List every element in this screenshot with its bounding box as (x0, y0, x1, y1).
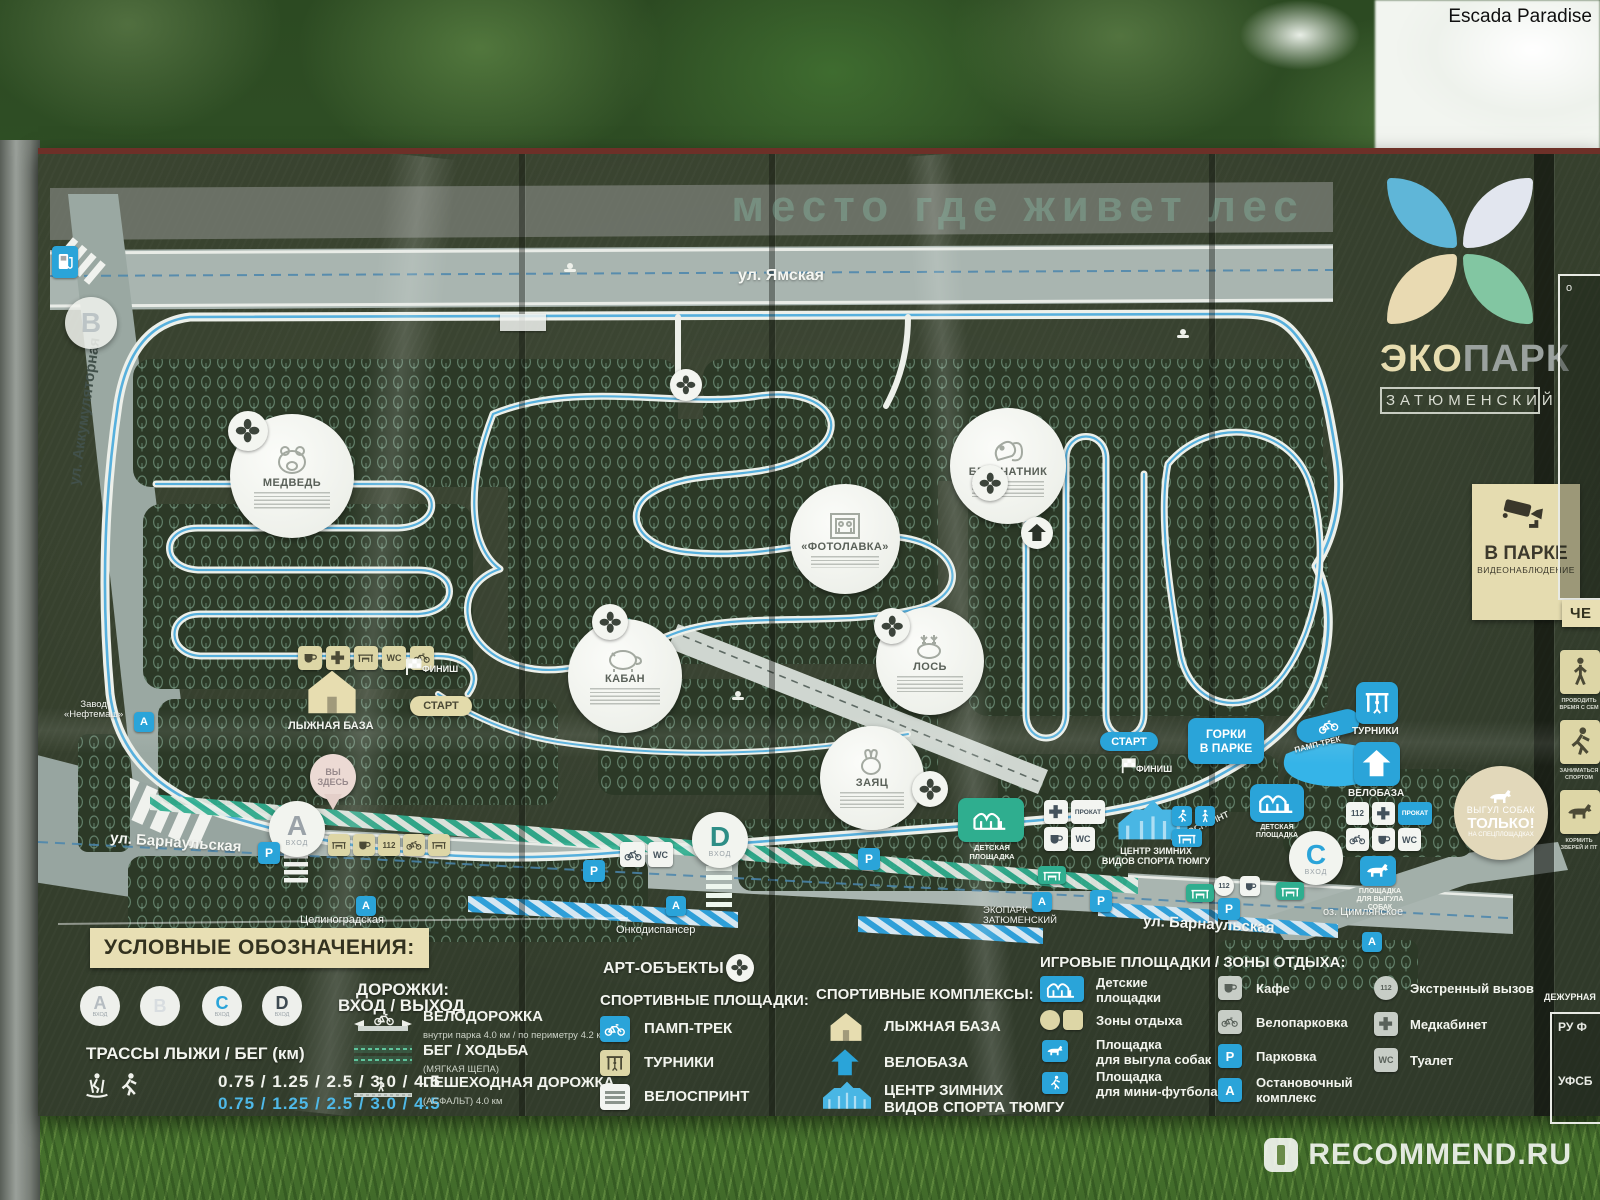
gate-a-sub: ВХОД (286, 840, 309, 847)
legend-gate-a-sub: ВХОД (93, 1012, 108, 1018)
legend-sc3-line1: ЦЕНТР ЗИМНИХ (884, 1082, 1003, 1099)
dog-area-label: ПЛОЩАДКА ДЛЯ ВЫГУЛА СОБАК (1354, 888, 1406, 912)
photo-scene: Escada Paradise (0, 0, 1600, 1200)
legend-bus-stop-icon: A (1218, 1078, 1242, 1102)
legend-wc-text: WC (1379, 1055, 1394, 1065)
pl1-line2: площадки (1096, 990, 1161, 1005)
bike-parking-icon (403, 834, 425, 856)
parking-icon: P (858, 848, 880, 870)
parking-text: P (265, 846, 273, 860)
family-time-caption: ПРОВОДИТЬ ВРЕМЯ С СЕМ (1556, 698, 1600, 711)
bus-shelter-icon (1276, 882, 1304, 900)
legend-ski-base-icon (820, 1010, 872, 1044)
cafe-icon (1044, 827, 1068, 851)
bench-icon (428, 834, 450, 856)
zavod-line2: «Нефтемаш» (64, 709, 123, 720)
bike-parking-icon (1346, 828, 1369, 851)
medical-icon (1044, 800, 1068, 824)
runner-icon (118, 1072, 140, 1098)
legend-pl5: Кафе (1256, 982, 1290, 997)
cafe-icon (353, 834, 375, 856)
poi-moose-caption (897, 676, 964, 692)
velobaza-icon (1354, 742, 1400, 786)
boar-icon (606, 647, 644, 673)
bus-shelter-icon (1172, 829, 1202, 847)
wc-icon: WC (382, 646, 406, 670)
gorki-line1: ГОРКИ (1206, 727, 1246, 741)
parking-icon: P (583, 860, 605, 882)
bus-stop-a-icon: A (134, 712, 154, 732)
legend-dog-icon (1042, 1040, 1068, 1062)
watermark-bottom: RECOMMEND.RU (1264, 1138, 1572, 1172)
sign-post (0, 140, 40, 1200)
side-phone2: УФСБ (1558, 1074, 1600, 1088)
art-object-icon (592, 604, 628, 640)
sky-patch-small (1240, 0, 1360, 70)
legend-sg2: ТУРНИКИ (644, 1054, 714, 1071)
kids-playground2-label: ДЕТСКАЯ ПЛОЩАДКА (1246, 824, 1308, 840)
sos-112-icon: 112 (1214, 876, 1234, 896)
prokat-text: ПРОКАТ (1075, 809, 1101, 816)
bus-stop-a-text: A (1368, 936, 1376, 948)
legend-kids-icon (1040, 976, 1084, 1002)
parking-icon: P (258, 842, 280, 864)
legend-pl8: Остановочныйкомплекс (1256, 1076, 1353, 1106)
bus-stop-a-text: A (1038, 896, 1046, 908)
legend-gate-b: B (140, 986, 180, 1026)
gas-station-icon (52, 246, 78, 278)
panel-seam (519, 154, 525, 1116)
prokat-icon: ПРОКАТ (1071, 800, 1105, 824)
bus-stop-a-text: A (672, 900, 680, 912)
bike-path-name: ВЕЛОДОРОЖКА (423, 1008, 543, 1025)
poi-bear-caption (254, 492, 331, 510)
squirrel-icon (990, 436, 1026, 466)
poi-boar: КАБАН (568, 619, 682, 733)
ski-icon (84, 1072, 110, 1098)
you-are-here-line2: ЗДЕСЬ (317, 777, 348, 787)
bus-stop-a-icon: A (1032, 892, 1052, 912)
finish-label: ФИНИШ (422, 664, 458, 674)
art-object-icon (874, 608, 910, 644)
legend-gate-a: AВХОД (80, 986, 120, 1026)
legend-sc3-line2: ВИДОВ СПОРТА ТЮМГУ (884, 1099, 1064, 1116)
cafe-icon (1372, 828, 1395, 851)
kids2-line1: ДЕТСКАЯ (1260, 824, 1293, 831)
art-object-icon (972, 465, 1008, 501)
art-object-icon (228, 411, 268, 451)
kids-playground2-icon (1250, 784, 1304, 822)
label-onkodispanser: Онкодиспансер (616, 924, 695, 936)
dog-icon (1486, 789, 1516, 805)
legend-gate-c-letter: C (216, 994, 229, 1012)
dog-walking-notice: ВЫГУЛ СОБАК ТОЛЬКО! НА СПЕЦПЛОЩАДКАХ (1454, 766, 1548, 860)
art-object-icon (670, 369, 702, 401)
run-path-icon (354, 1044, 412, 1066)
wc-text: WC (653, 850, 668, 860)
prokat-text: ПРОКАТ (1402, 810, 1428, 817)
do-sport-icon (1560, 720, 1600, 764)
poi-squirrel: БЕЛЬЧАТНИК (950, 408, 1066, 524)
feed-animals-icon (1560, 790, 1600, 834)
ecopark-logo: ЭКОПАРК ЗАТЮМЕНСКИЙ (1380, 178, 1540, 414)
squirrel-house-icon (1021, 517, 1053, 549)
legend-cafe-icon (1218, 976, 1242, 1000)
pl8-line1: Остановочный (1256, 1075, 1353, 1090)
street-yamskaya: ул. Ямская (738, 267, 824, 285)
side-box-text: о (1566, 282, 1572, 294)
mini-football-icon (1172, 806, 1192, 826)
legend-sc2: ВЕЛОБАЗА (884, 1054, 968, 1071)
pl3-line1: Площадка (1096, 1037, 1162, 1052)
bus-shelter-icon (1038, 866, 1066, 884)
legend-pl7: Парковка (1256, 1050, 1317, 1065)
ski-base-label: ЛЫЖНАЯ БАЗА (288, 720, 374, 732)
poi-hare: ЗАЯЦ (820, 726, 924, 830)
poi-fotolavka-label: «ФОТОЛАВКА» (801, 541, 889, 553)
winter-sport-center-label: ЦЕНТР ЗИМНИХ ВИДОВ СПОРТА ТЮМГУ (1086, 846, 1226, 867)
family-time-icon (1560, 650, 1600, 694)
turniki-label: ТУРНИКИ (1352, 726, 1399, 737)
stop-line2: ЗАТЮМЕНСКИЙ (983, 915, 1057, 926)
bus-shelter-icon (1186, 884, 1214, 902)
bike-path-icon (354, 1010, 412, 1032)
poi-moose-label: ЛОСЬ (913, 661, 947, 673)
legend-sg1: ПАМП-ТРЕК (644, 1020, 732, 1037)
poi-bear-label: МЕДВЕДЬ (263, 477, 321, 489)
do-sport-caption: ЗАНИМАТЬСЯ СПОРТОМ (1556, 768, 1600, 781)
legend-sg3: ВЕЛОСПРИНТ (644, 1088, 749, 1105)
parking-text: P (865, 852, 873, 866)
finish-flag-icon (404, 656, 424, 678)
legend-art-icon (726, 954, 754, 982)
start2-label: СТАРТ (1100, 732, 1158, 751)
dog-area-icon (1360, 856, 1396, 886)
bike-parking-icon (620, 842, 645, 867)
kids2-line2: ПЛОЩАДКА (1256, 832, 1298, 839)
legend-pl11: Туалет (1410, 1054, 1453, 1069)
side-phone1: РУ Ф (1558, 1020, 1600, 1034)
parking-icon: P (1090, 890, 1112, 912)
start-text: СТАРТ (423, 700, 459, 712)
park-map-graphic (38, 154, 1600, 1116)
kids-playground-icon (958, 798, 1024, 842)
photo-frame-icon (828, 511, 862, 541)
legend-pump-icon (600, 1016, 630, 1042)
legend-parking-text: P (1226, 1049, 1235, 1064)
gate-d: DВХОД (692, 812, 748, 868)
sticker (500, 314, 546, 331)
legend-walk-path: ПЕШЕХОДНАЯ ДОРОЖКА (АСФАЛЬТ) 4.0 км (423, 1074, 614, 1108)
legend-run-path: БЕГ / ХОДЬБА (МЯГКАЯ ЩЕПА) (423, 1042, 528, 1076)
wc-text: WC (387, 653, 402, 663)
moose-icon (912, 631, 948, 661)
legend-sos-icon: 112 (1374, 976, 1398, 1000)
medical-icon (1372, 802, 1395, 825)
poi-fotolavka: «ФОТОЛАВКА» (790, 484, 900, 594)
bench-icon (328, 834, 350, 856)
legend-bike-path: ВЕЛОДОРОЖКА внутри парка 4.0 км / по пер… (423, 1008, 607, 1042)
start-label: СТАРТ (410, 696, 472, 716)
logo-park: ПАРК (1463, 338, 1570, 380)
bus-stop-a-icon: A (666, 896, 686, 916)
legend-sc3: ЦЕНТР ЗИМНИХ ВИДОВ СПОРТА ТЮМГУ (884, 1082, 1064, 1116)
cafe-icon (1240, 876, 1260, 896)
logo-subtitle: ЗАТЮМЕНСКИЙ (1380, 387, 1540, 414)
legend-play-title: ИГРОВЫЕ ПЛОЩАДКИ / ЗОНЫ ОТДЫХА: (1040, 954, 1345, 971)
panel-seam (1209, 154, 1215, 1116)
legend-gate-c-sub: ВХОД (215, 1012, 230, 1018)
legend-sos-text: 112 (1380, 985, 1391, 992)
gate-d-letter: D (710, 823, 730, 851)
legend-pl10: Медкабинет (1410, 1018, 1487, 1033)
legend-gate-a-letter: A (94, 994, 107, 1012)
sos-112-icon: 112 (378, 834, 400, 856)
walk-path-icon (354, 1076, 412, 1100)
watermark-top: Escada Paradise (1448, 6, 1592, 28)
side-info-box: о (1558, 274, 1600, 600)
legend-sport-complex-title: СПОРТИВНЫЕ КОМПЛЕКСЫ: (816, 986, 1034, 1003)
gate-c-letter: C (1306, 841, 1326, 869)
legend-gate-d: DВХОД (262, 986, 302, 1026)
bus-stop-a-text: A (140, 716, 148, 728)
gate-b-letter: B (81, 309, 101, 337)
legend-pl2: Зоны отдыха (1096, 1014, 1182, 1029)
hare-icon (857, 749, 887, 777)
wc-icon: WC (648, 842, 673, 867)
logo-leaves-icon (1380, 178, 1540, 324)
runner-icon (1195, 806, 1215, 826)
legend-gate-b-letter: B (154, 997, 167, 1015)
sos-112-text: 112 (1218, 883, 1229, 890)
legend-football-icon (1042, 1072, 1068, 1094)
kids-playground-label: ДЕТСКАЯ ПЛОЩАДКА (952, 844, 1032, 861)
parking-text: P (1225, 902, 1233, 916)
bus-stop-a-icon: A (1362, 932, 1382, 952)
pl1-line1: Детские (1096, 975, 1148, 990)
poi-boar-caption (590, 688, 661, 706)
side-duty-label: ДЕЖУРНАЯ (1544, 992, 1596, 1002)
pl4-line2: для мини-футбола (1096, 1084, 1218, 1099)
notice-line3: НА СПЕЦПЛОЩАДКАХ (1468, 832, 1533, 838)
gate-b: B (65, 297, 117, 349)
prokat-icon: ПРОКАТ (1398, 802, 1432, 825)
legend-pl6: Велопарковка (1256, 1016, 1348, 1031)
logo-eco: ЭКО (1380, 338, 1463, 380)
art-object-icon (912, 771, 948, 807)
legend-wc-icon: WC (1374, 1048, 1398, 1072)
gate-c-sub: ВХОД (1305, 869, 1328, 876)
panel-seam (769, 154, 775, 1116)
gate-d-sub: ВХОД (709, 851, 732, 858)
bike-path-sub: внутри парка 4.0 км / по периметру 4.2 к… (423, 1030, 607, 1041)
legend-tracks-title: ТРАССЫ ЛЫЖИ / БЕГ (км) (86, 1044, 305, 1064)
gate-a-letter: A (287, 812, 307, 840)
label-zavod-neftemash: Завод «Нефтемаш» (64, 700, 123, 721)
legend-pl4: Площадкадля мини-футбола (1096, 1070, 1218, 1100)
legend-velobaza-icon (828, 1048, 862, 1078)
pl8-line2: комплекс (1256, 1090, 1316, 1105)
parking-icon: P (1218, 898, 1240, 920)
finish2-label: ФИНИШ (1136, 764, 1172, 774)
recommend-icon (1264, 1138, 1298, 1172)
logo-title: ЭКОПАРК (1380, 338, 1540, 381)
legend-bus-stop-text: A (1225, 1083, 1234, 1098)
legend-gate-d-letter: D (276, 994, 289, 1012)
legend-rest-zone-icon (1040, 1010, 1060, 1030)
parking-text: P (590, 864, 598, 878)
legend-rest-zone-icon2 (1063, 1010, 1083, 1030)
sos-112-text: 112 (383, 841, 396, 850)
pl4-line1: Площадка (1096, 1069, 1162, 1084)
gorki-v-parke-label: ГОРКИ В ПАРКЕ (1188, 718, 1264, 764)
legend-art-title: АРТ-ОБЪЕКТЫ (603, 960, 724, 978)
bear-icon (272, 443, 312, 477)
poi-hare-caption (840, 792, 904, 808)
run-path-name: БЕГ / ХОДЬБА (423, 1042, 528, 1059)
park-map-board: место где живет лес ЭКОПАРК ЗАТЮМЕНСКИЙ … (38, 148, 1600, 1116)
you-are-here-line1: ВЫ (325, 767, 340, 777)
side-phones-box: РУ Ф УФСБ (1550, 1012, 1600, 1124)
legend-winter-center-icon (816, 1080, 878, 1112)
legend-bike-parking-icon (1218, 1010, 1242, 1034)
legend-velosprint-icon (600, 1084, 630, 1110)
wc-icon: WC (1398, 828, 1421, 851)
walk-path-sub: (АСФАЛЬТ) 4.0 км (423, 1096, 502, 1107)
watermark-bottom-text: RECOMMEND.RU (1308, 1138, 1572, 1172)
dog-area-line3: СОБАК (1368, 904, 1392, 911)
you-are-here-marker: ВЫ ЗДЕСЬ (310, 754, 356, 800)
feed-animals-caption: КОРМИТЬ ЗВЕРЕЙ И ПТ (1556, 838, 1600, 851)
legend-pl3: Площадкадля выгула собак (1096, 1038, 1211, 1068)
ski-base-house-icon (292, 666, 372, 718)
legend-title: УСЛОВНЫЕ ОБОЗНАЧЕНИЯ: (90, 928, 429, 968)
velobaza-label: ВЕЛОБАЗА (1348, 788, 1404, 799)
wc-text: WC (1076, 834, 1091, 844)
wc-text: WC (1402, 835, 1417, 845)
kids-line2: ПЛОЩАДКА (969, 852, 1014, 861)
board-title: место где живет лес (658, 182, 1378, 232)
sos-112-text: 112 (1351, 809, 1364, 818)
bus-stop-a-icon: A (356, 896, 376, 916)
parking-text: P (1097, 894, 1105, 908)
legend-turniki-icon (600, 1050, 630, 1076)
notice-line1: ВЫГУЛ СОБАК (1467, 805, 1535, 815)
poi-hare-label: ЗАЯЦ (856, 777, 888, 789)
legend-parking-icon: P (1218, 1044, 1242, 1068)
legend-gate-c: CВХОД (202, 986, 242, 1026)
walk-path-name: ПЕШЕХОДНАЯ ДОРОЖКА (423, 1074, 614, 1091)
legend-pl1: Детскиеплощадки (1096, 976, 1161, 1006)
cctv-camera-icon (1499, 494, 1553, 534)
sos-112-icon: 112 (1346, 802, 1369, 825)
poi-boar-label: КАБАН (605, 673, 645, 685)
legend-gate-d-sub: ВХОД (275, 1012, 290, 1018)
poi-fotolavka-caption (811, 556, 879, 568)
legend-pl9: Экстренный вызов (1410, 982, 1534, 997)
winter-line2: ВИДОВ СПОРТА ТЮМГУ (1102, 856, 1210, 866)
legend-med-icon (1374, 1012, 1398, 1036)
start2-text: СТАРТ (1111, 736, 1147, 748)
gorki-line2: В ПАРКЕ (1200, 741, 1253, 755)
bus-stop-a-text: A (362, 900, 370, 912)
turniki-icon (1356, 682, 1398, 724)
legend-sc1: ЛЫЖНАЯ БАЗА (884, 1018, 1001, 1035)
legend-sport-grounds-title: СПОРТИВНЫЕ ПЛОЩАДКИ: (600, 992, 809, 1009)
pl3-line2: для выгула собак (1096, 1052, 1211, 1067)
side-header: ЧЕ (1562, 600, 1600, 627)
notice-line2: ТОЛЬКО! (1467, 815, 1534, 832)
dog-area-line2: ДЛЯ ВЫГУЛА (1357, 896, 1404, 903)
legend-paths-title: ДОРОЖКИ: (356, 980, 449, 1000)
dog-area-line1: ПЛОЩАДКА (1359, 888, 1401, 895)
winter-line1: ЦЕНТР ЗИМНИХ (1120, 846, 1192, 856)
